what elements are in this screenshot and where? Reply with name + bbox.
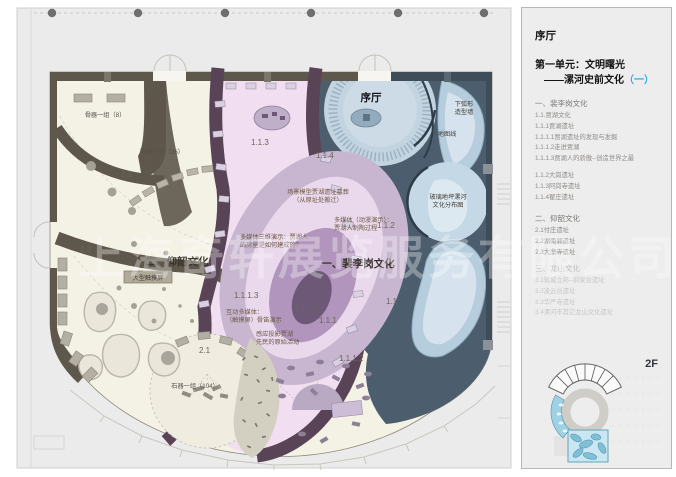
section-2-heading: 二、仰韶文化 [535, 213, 667, 224]
list-item: 1.1.1贾湖遗址 [535, 122, 667, 133]
label-interactive-2: （触摸屏）骨笛演示 [226, 316, 282, 324]
label-interactive-1: 互动多媒体： [226, 308, 263, 316]
label-peiligang-culture: 一、裴李岗文化 [321, 257, 395, 270]
mini-hall-ring [566, 393, 604, 431]
label-arc-wall-1: 下弧形 [455, 100, 474, 108]
section-1-heading: 一、裴李岗文化 [535, 98, 667, 109]
mini-tail [554, 436, 568, 456]
list-item: 3.3华严寺遗址 [535, 298, 667, 309]
label-xuting: 序厅 [361, 91, 382, 104]
label-pottery-group: 陶器一组（26） [140, 148, 184, 156]
label-mm-anim-2: 贾湖人制陶过程 [334, 224, 377, 232]
list-item: 3.2凌云台遗址 [535, 287, 667, 298]
label-mm-anim-1: 多媒体（动漫演示）： [334, 216, 393, 224]
label-glass-floor-1: 玻璃地坪漯河 [429, 193, 466, 201]
label-2-3: 2.3 [121, 170, 133, 179]
list-item: 3.4漯河市其它龙山文化遗址 [535, 308, 667, 319]
label-stone-group: 石器一组（104） [171, 382, 218, 390]
unit-title-line1: 第一单元：文明曙光 [535, 56, 625, 71]
list-item: 2.3大悲寺遗址 [535, 248, 667, 259]
label-1-1-1-2: 1.1.1.2 [339, 354, 364, 363]
list-item: 2.2湖南郭遗址 [535, 237, 667, 248]
unit-number: （一） [624, 75, 654, 86]
label-1-1-4: 1.1.4 [316, 151, 334, 160]
list-item: 1.1.贾湖文化 [535, 111, 667, 122]
list-item: 1.1.4翟庄遗址 [535, 193, 667, 204]
panel-hall-title: 序厅 [535, 28, 556, 43]
label-2-2: 2.2 [80, 245, 92, 254]
label-1-1-3: 1.1.3 [251, 138, 269, 147]
unit-title-line2: ——漯河史前文化（一） [544, 71, 654, 86]
list-item: 2.1付庄遗址 [535, 226, 667, 237]
label-glass-floor-2: 文化分布图 [433, 201, 464, 209]
section-yangshao: 二、仰韶文化 2.1付庄遗址 2.2湖南郭遗址 2.3大悲寺遗址 [535, 213, 667, 258]
top-wall [50, 72, 492, 82]
floor-label-2f: 2F [645, 358, 658, 370]
label-scene-model-2: （从原址处搬迁） [293, 196, 343, 204]
mini-floor-map: 2F [528, 350, 668, 468]
list-item: 1.1.1.3贾湖人的骄傲--创造世界之最 [535, 154, 667, 165]
label-yangshao-culture: 二、仰韶文化 [146, 255, 209, 268]
label-touchscreen: 大型触摸屏 [133, 274, 164, 282]
legend-panel: 序厅 第一单元：文明曙光 ——漯河史前文化（一） 一、裴李岗文化 1.1.贾湖文… [521, 7, 672, 469]
section-peiligang-sites: 1.1.2大岗遗址 1.1.3阿岗寺遗址 1.1.4翟庄遗址 [535, 171, 667, 203]
label-1-1-1-1: 1.1.1.1 [294, 304, 319, 313]
floor-plan: 二、仰韶文化 一、裴李岗文化 序厅 2.3 2.2 2.1 1.1.3 1.1.… [14, 6, 514, 470]
scene-stage [254, 106, 290, 130]
label-1-1-1: 1.1.1 [319, 316, 337, 325]
label-mm-3d-2: 的房屋是如何建成的？ [240, 241, 302, 249]
label-projection-2: 先民的原始活动 [256, 338, 299, 346]
unit-title-text: ——漯河史前文化 [544, 75, 624, 86]
list-item: 1.1.1.2走进贾湖 [535, 143, 667, 154]
section-3-heading: 三、龙山文化 [535, 263, 667, 274]
label-map-line: 地图线 [438, 130, 457, 138]
label-2-1: 2.1 [199, 346, 211, 355]
page: 二、仰韶文化 一、裴李岗文化 序厅 2.3 2.2 2.1 1.1.3 1.1.… [0, 0, 676, 477]
section-longshan: 三、龙山文化 3.1筑城立邦--郝家台遗址 3.2凌云台遗址 3.3华严寺遗址 … [535, 263, 667, 319]
label-1-1-1-3: 1.1.1.3 [234, 291, 259, 300]
section-peiligang: 一、裴李岗文化 1.1.贾湖文化 1.1.1贾湖遗址 1.1.1.1贾湖遗址的发… [535, 98, 667, 165]
label-arc-wall-2: 造型墙 [455, 108, 474, 116]
label-mm-3d-1: 多媒体三维演示：贾湖人 [240, 233, 308, 241]
label-scene-model-1: 场景模型贾湖遗址墓葬 [287, 188, 349, 196]
label-bone-group: 骨器一组（8） [85, 111, 126, 119]
list-item: 3.1筑城立邦--郝家台遗址 [535, 276, 667, 287]
list-item: 1.1.2大岗遗址 [535, 171, 667, 182]
list-item: 1.1.1.1贾湖遗址的发现与发掘 [535, 133, 667, 144]
list-item: 1.1.3阿岗寺遗址 [535, 182, 667, 193]
label-1-1: 1.1 [386, 297, 398, 306]
label-projection-1: 感应投影贾湖 [256, 330, 293, 338]
